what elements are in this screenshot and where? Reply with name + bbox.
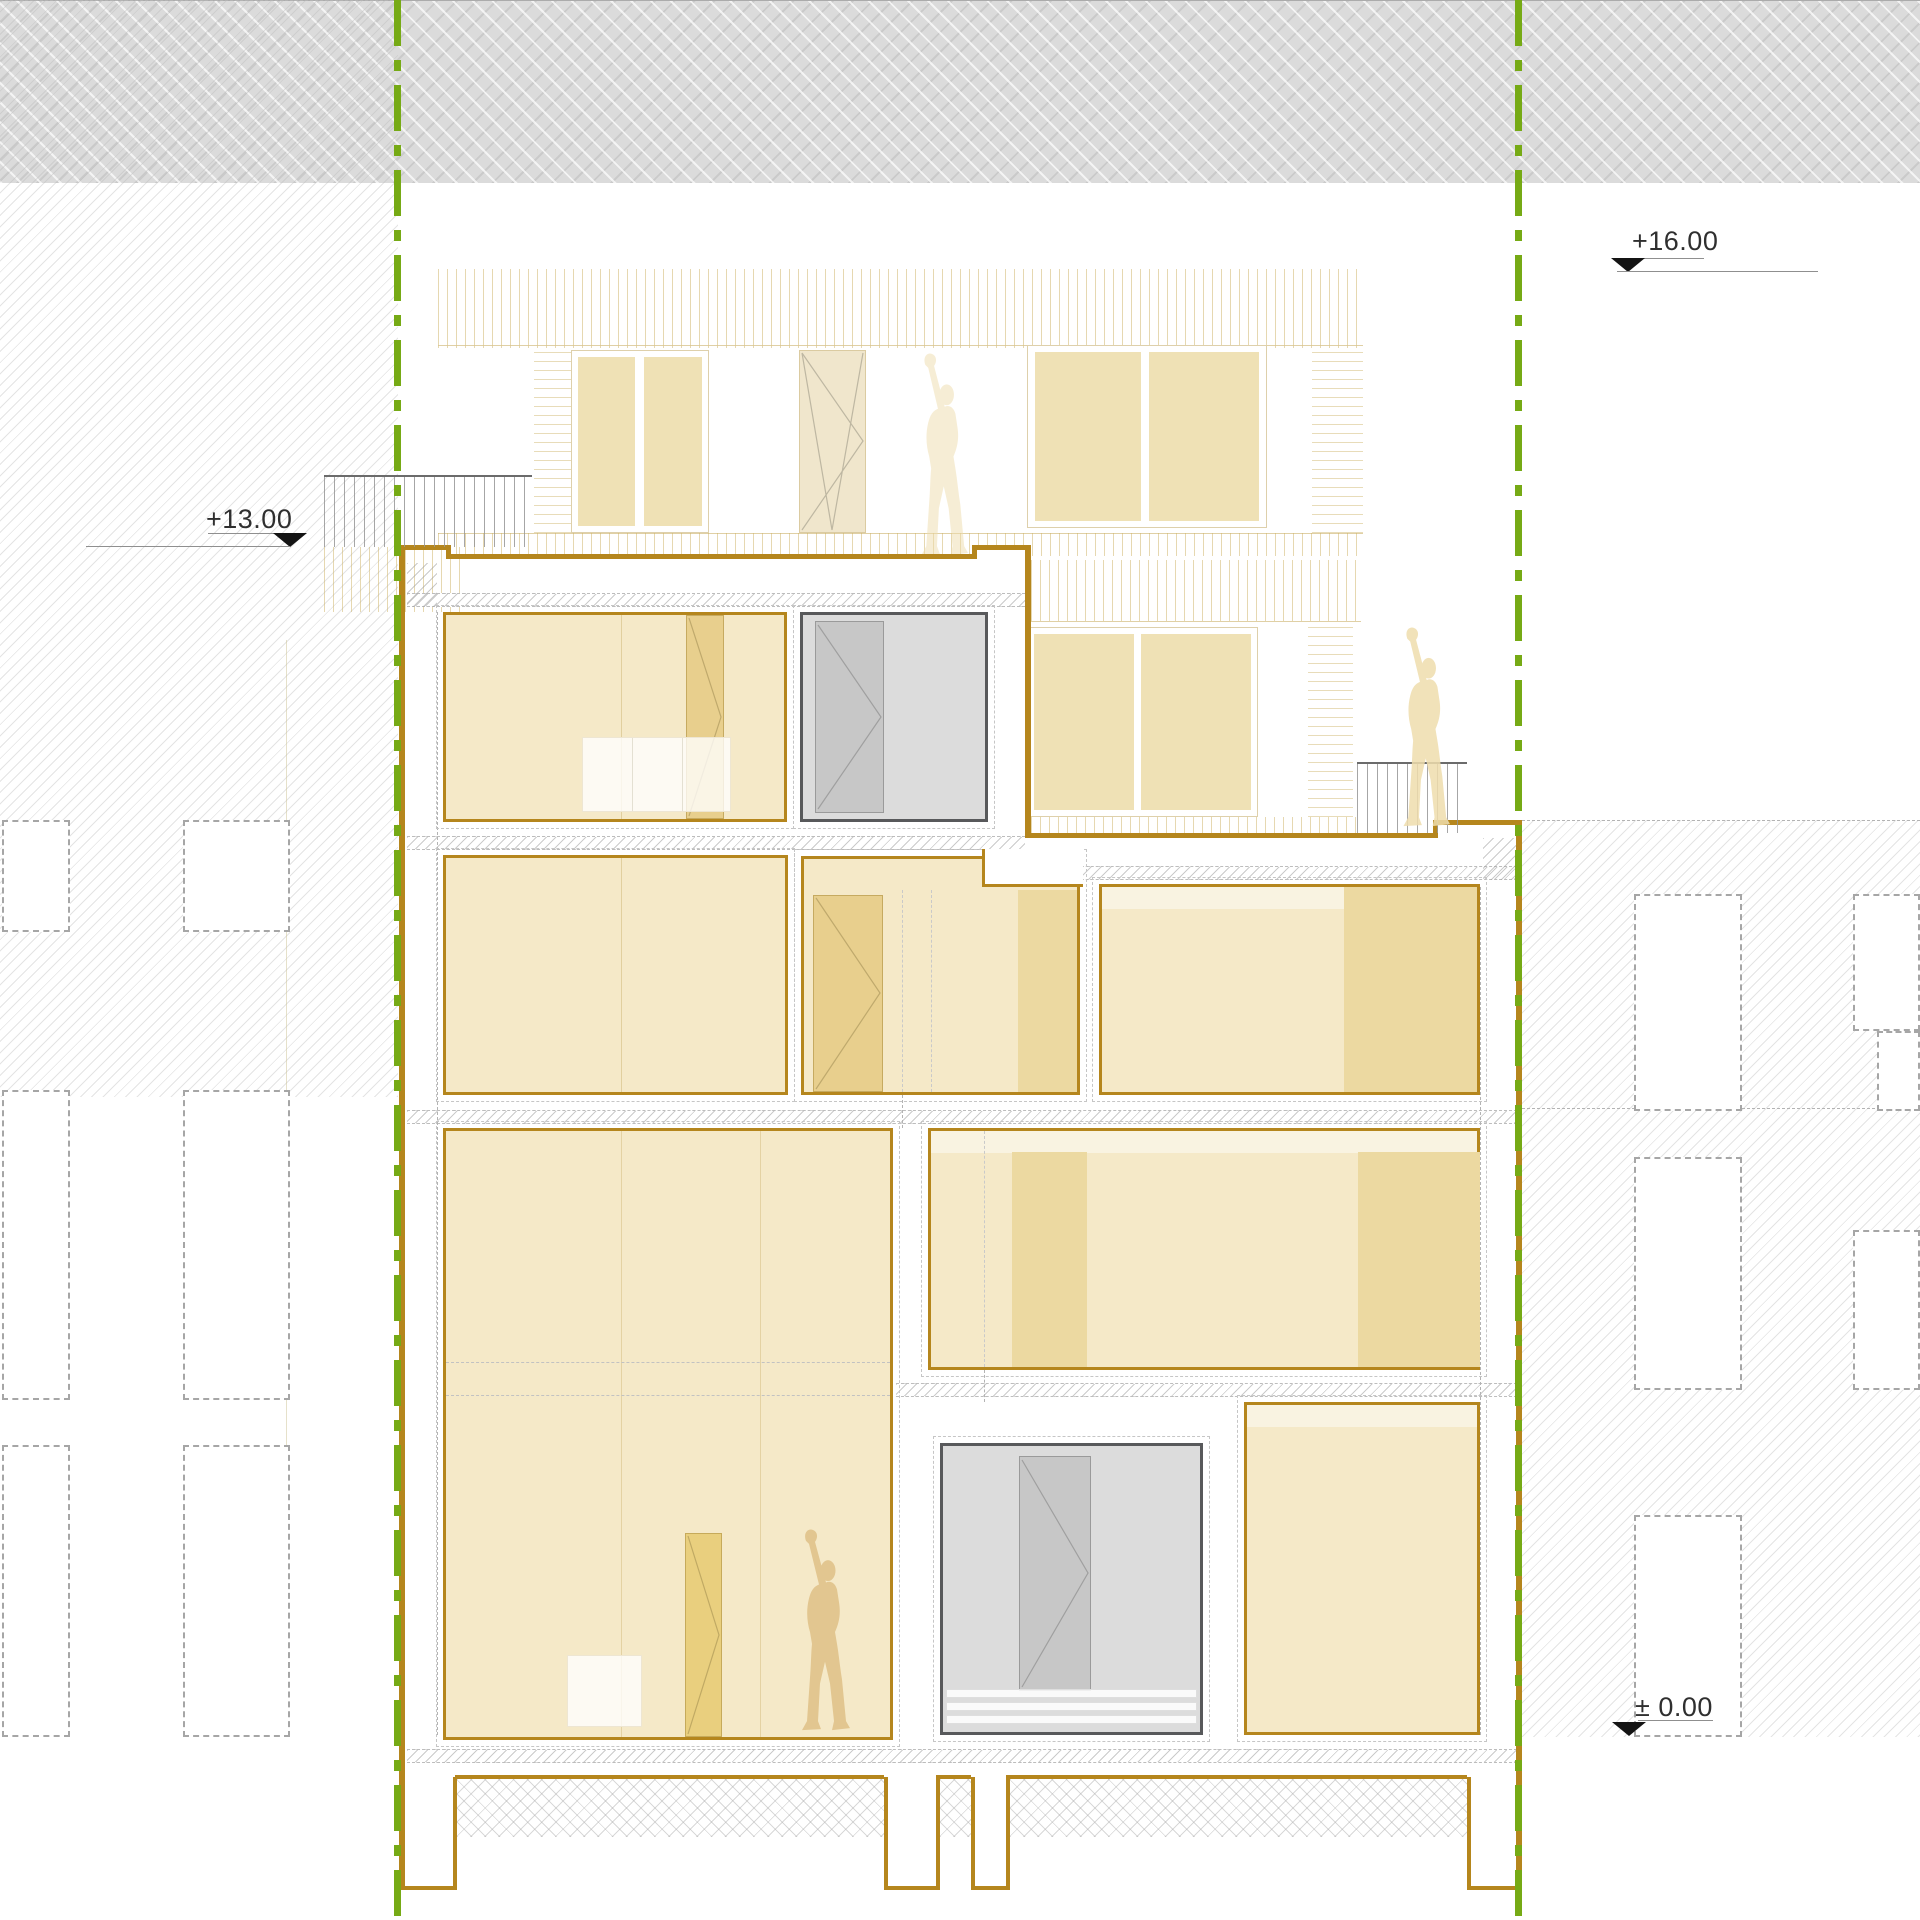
rear-facade-cladding-band: [1031, 560, 1361, 621]
door-swing-icon: [814, 896, 882, 1091]
foundation-block: [1010, 1779, 1467, 1837]
foundation-pier-edge: [1467, 1777, 1471, 1888]
finish-line: [984, 1131, 985, 1367]
omitted-floor-line: [446, 1395, 890, 1396]
foundation-pier-edge: [1006, 1777, 1010, 1888]
door-swing-icon: [1020, 1457, 1090, 1690]
rear-facade-sill-band: [1031, 817, 1361, 833]
terrace-roof-line: [1025, 833, 1437, 838]
left-neighbor-window: [183, 1090, 290, 1400]
foundation-bottom-line: [884, 1886, 940, 1890]
finish-line: [902, 890, 903, 1092]
property-boundary-line-right: [1515, 0, 1522, 1920]
furniture-divider: [632, 738, 633, 811]
wall-finish-line: [437, 612, 438, 1735]
rear-facade-louvers: [534, 350, 571, 533]
rear-facade-window: [571, 350, 709, 533]
interior-door: [813, 895, 883, 1092]
foundation-pier-edge: [453, 1777, 457, 1888]
window-pane: [1149, 352, 1259, 521]
rear-facade-window: [1027, 345, 1267, 528]
right-neighbor-window: [1877, 1031, 1920, 1111]
window-pane: [1035, 352, 1141, 521]
right-neighbor-window: [1634, 1157, 1742, 1390]
roof-terrace-railing: [324, 475, 532, 547]
ceiling-band: [1247, 1405, 1477, 1427]
wall-in-section: [1358, 1152, 1480, 1367]
foundation-block: [457, 1779, 884, 1837]
floor-slab: [407, 836, 1025, 850]
window-pane: [644, 357, 702, 526]
entrance-door-leaf: [1019, 1456, 1091, 1691]
rear-facade-cladding-band: [438, 533, 1363, 556]
foundation-pier-edge: [971, 1777, 975, 1888]
level-marker-icon: [1612, 1722, 1646, 1736]
foundation-pier-edge: [884, 1777, 888, 1888]
foundation-top-line: [455, 1775, 884, 1779]
human-figure-icon: [1384, 625, 1452, 833]
door-swing-icon: [686, 1534, 721, 1736]
finish-line: [621, 1131, 622, 1737]
human-figure-icon: [782, 1527, 852, 1737]
left-neighbor-window: [2, 820, 70, 932]
door-swing-icon: [816, 622, 883, 812]
rear-facade-louvers: [1312, 350, 1363, 533]
left-neighbor-floor-line: [0, 0, 398, 1]
entrance-door: [940, 1443, 1203, 1735]
rear-facade-tilt-window: [799, 350, 866, 533]
finish-line: [931, 890, 932, 1092]
human-figure-icon: [902, 351, 970, 562]
foundation-block: [940, 1779, 971, 1837]
floor-slab: [896, 1383, 1517, 1397]
tilt-turn-symbol-icon: [800, 351, 865, 532]
foundation-bottom-line: [399, 1886, 457, 1890]
room-level2-left: [443, 855, 788, 1095]
ceiling-band: [931, 1131, 1477, 1153]
left-neighbor-window: [183, 820, 290, 932]
roof-slab-right: [1031, 866, 1517, 880]
omitted-floor-line: [446, 1362, 890, 1363]
wardrobe-furniture: [582, 737, 731, 812]
wall-finish-line: [1480, 887, 1481, 1735]
floor-slab: [407, 1110, 1517, 1124]
furniture-divider: [682, 738, 683, 811]
right-neighbor-window: [1853, 894, 1920, 1031]
roof-slab: [407, 593, 1025, 607]
room-ground-right: [1244, 1402, 1480, 1735]
property-boundary-line-left: [394, 0, 401, 1920]
level-marker-icon: [1611, 258, 1645, 272]
marker-level-line: [1617, 271, 1818, 272]
foundation-pier: [975, 1779, 1006, 1886]
wall-in-section: [1344, 887, 1477, 1092]
window-pane: [1034, 634, 1134, 810]
level-marker-icon: [273, 533, 307, 547]
window-pane: [1141, 634, 1251, 810]
rear-facade-louvers: [1308, 621, 1353, 817]
wall-in-section: [1018, 890, 1077, 1092]
foundation-top-line: [936, 1775, 971, 1779]
ground-slab: [407, 1749, 1517, 1763]
foundation-pier: [1471, 1779, 1516, 1886]
threshold-step: [946, 1689, 1197, 1698]
interior-door: [685, 1533, 722, 1737]
building-section-drawing: +16.00 +13.00 ± 0.00: [0, 0, 1920, 1920]
wall-hatch: [1483, 838, 1517, 880]
right-neighbor-window: [1634, 894, 1742, 1111]
left-neighbor-window: [183, 1445, 290, 1737]
finish-line: [984, 1370, 985, 1402]
foundation-pier: [403, 1779, 453, 1886]
level-label: +16.00: [1632, 226, 1718, 257]
rear-facade-cladding-band: [438, 269, 1363, 348]
finish-line: [760, 1131, 761, 1737]
left-neighbor-window: [2, 1090, 70, 1400]
threshold-step: [946, 1715, 1197, 1724]
threshold-step: [946, 1702, 1197, 1711]
finish-line: [902, 1095, 903, 1128]
elevator-shaft: [800, 612, 988, 822]
marker-underline: [1638, 1720, 1713, 1721]
window-pane: [578, 357, 635, 526]
room-step-notch: [982, 849, 1083, 887]
right-neighbor-window: [1853, 1230, 1920, 1390]
foundation-top-line: [1006, 1775, 1467, 1779]
parapet-line: [972, 545, 1031, 550]
left-neighbor-window: [2, 1445, 70, 1737]
foundation-pier-edge: [936, 1777, 940, 1888]
foundation-bottom-line: [1467, 1886, 1522, 1890]
wall-in-section: [1012, 1152, 1087, 1367]
roof-line: [446, 554, 976, 559]
right-neighbor-roof-line: [1522, 820, 1920, 821]
foundation-bottom-line: [971, 1886, 1010, 1890]
foundation-pier: [888, 1779, 936, 1886]
rear-facade-window: [1027, 627, 1258, 817]
marker-underline: [1638, 258, 1704, 259]
level-label: +13.00: [206, 504, 292, 535]
furniture-box: [567, 1655, 642, 1727]
finish-line: [621, 858, 622, 1092]
top-floor-right-wall: [1025, 545, 1031, 838]
elevator-door-leaf: [815, 621, 884, 813]
marker-level-line: [86, 546, 290, 547]
wall-hatch: [407, 563, 437, 607]
level-label: ± 0.00: [1635, 1692, 1713, 1723]
